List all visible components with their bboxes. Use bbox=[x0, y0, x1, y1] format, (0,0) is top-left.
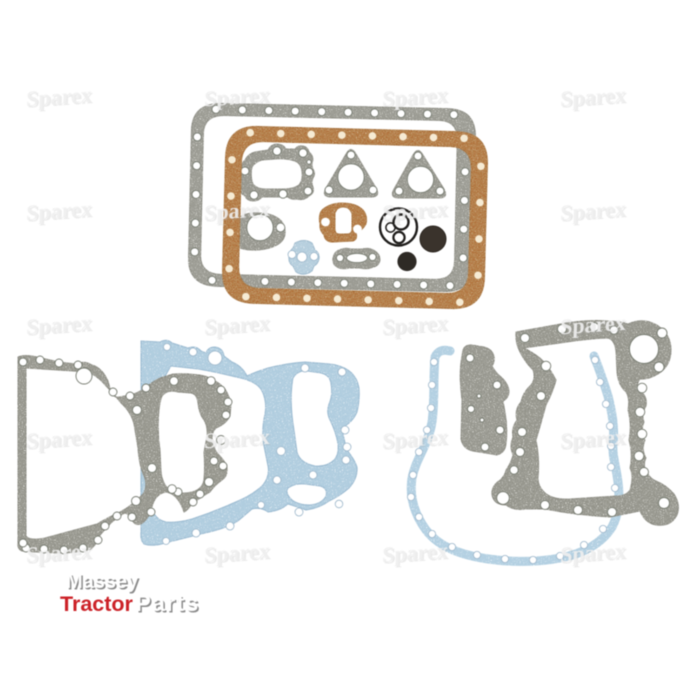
svg-text:Massey: Massey bbox=[66, 571, 139, 593]
svg-text:Sparex: Sparex bbox=[204, 310, 270, 340]
svg-text:Sparex: Sparex bbox=[382, 424, 448, 454]
svg-text:Sparex: Sparex bbox=[26, 424, 92, 454]
svg-text:Sparex: Sparex bbox=[382, 196, 448, 226]
svg-text:Tractor: Tractor bbox=[60, 592, 134, 616]
svg-text:Sparex: Sparex bbox=[204, 538, 270, 568]
svg-text:Sparex: Sparex bbox=[560, 82, 626, 112]
svg-text:Sparex: Sparex bbox=[204, 196, 270, 226]
svg-text:Sparex: Sparex bbox=[560, 196, 626, 226]
svg-text:Sparex: Sparex bbox=[382, 538, 448, 568]
svg-text:Sparex: Sparex bbox=[560, 310, 626, 340]
svg-text:Sparex: Sparex bbox=[26, 82, 92, 112]
svg-text:Sparex: Sparex bbox=[382, 82, 448, 112]
svg-text:Sparex: Sparex bbox=[26, 196, 92, 226]
svg-text:Sparex: Sparex bbox=[26, 310, 92, 340]
svg-text:Sparex: Sparex bbox=[382, 310, 448, 340]
svg-text:Sparex: Sparex bbox=[26, 538, 92, 568]
svg-text:Sparex: Sparex bbox=[560, 538, 626, 568]
svg-text:Sparex: Sparex bbox=[204, 424, 270, 454]
svg-text:Sparex: Sparex bbox=[204, 82, 270, 112]
svg-text:Sparex: Sparex bbox=[560, 424, 626, 454]
svg-text:Parts: Parts bbox=[136, 590, 200, 616]
